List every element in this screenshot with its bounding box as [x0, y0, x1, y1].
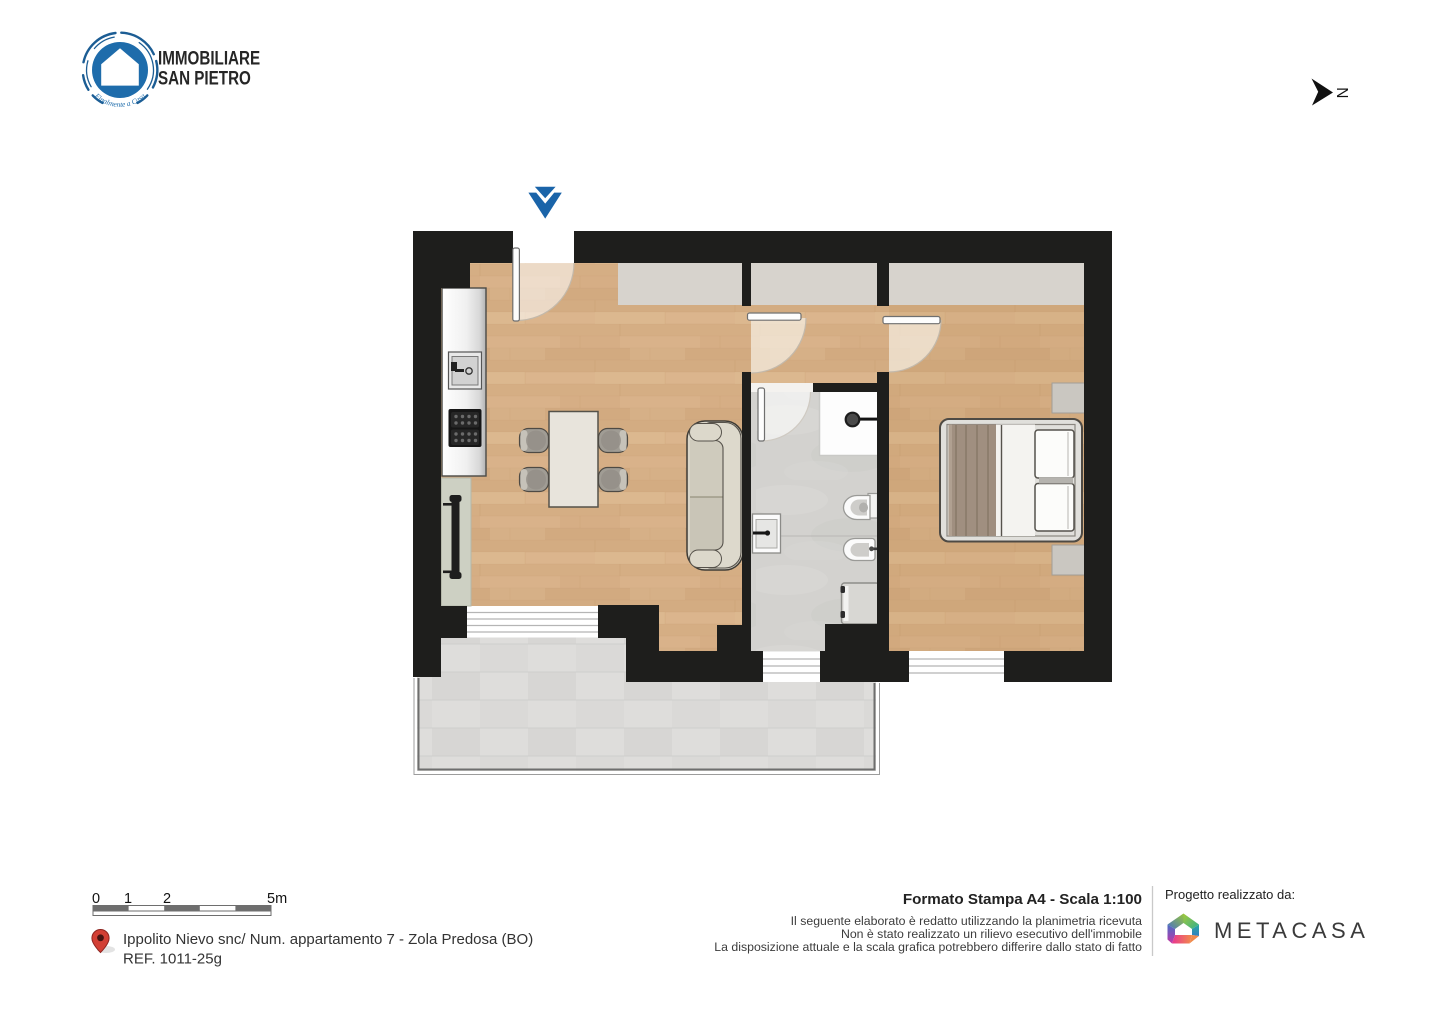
svg-text:IMMOBILIARE: IMMOBILIARE — [158, 47, 260, 69]
svg-text:Ippolito Nievo snc/ Num. appar: Ippolito Nievo snc/ Num. appartamento 7 … — [123, 931, 533, 948]
svg-text:METACASA: METACASA — [1214, 918, 1369, 943]
svg-text:Formato Stampa A4 - Scala 1:10: Formato Stampa A4 - Scala 1:100 — [903, 891, 1142, 908]
svg-text:SAN PIETRO: SAN PIETRO — [158, 67, 251, 89]
svg-text:5m: 5m — [267, 891, 287, 907]
svg-text:N: N — [1333, 87, 1350, 98]
svg-text:1: 1 — [124, 891, 132, 907]
svg-text:La disposizione attuale e la s: La disposizione attuale e la scala grafi… — [714, 940, 1142, 954]
svg-text:Progetto realizzato da:: Progetto realizzato da: — [1165, 887, 1295, 902]
svg-text:REF. 1011-25g: REF. 1011-25g — [123, 951, 222, 968]
svg-text:2: 2 — [163, 891, 171, 907]
svg-text:0: 0 — [92, 891, 100, 907]
svg-text:Non è stato realizzato un rili: Non è stato realizzato un rilievo esecut… — [841, 927, 1142, 941]
svg-text:Il seguente elaborato è redatt: Il seguente elaborato è redatto utilizza… — [791, 914, 1143, 928]
